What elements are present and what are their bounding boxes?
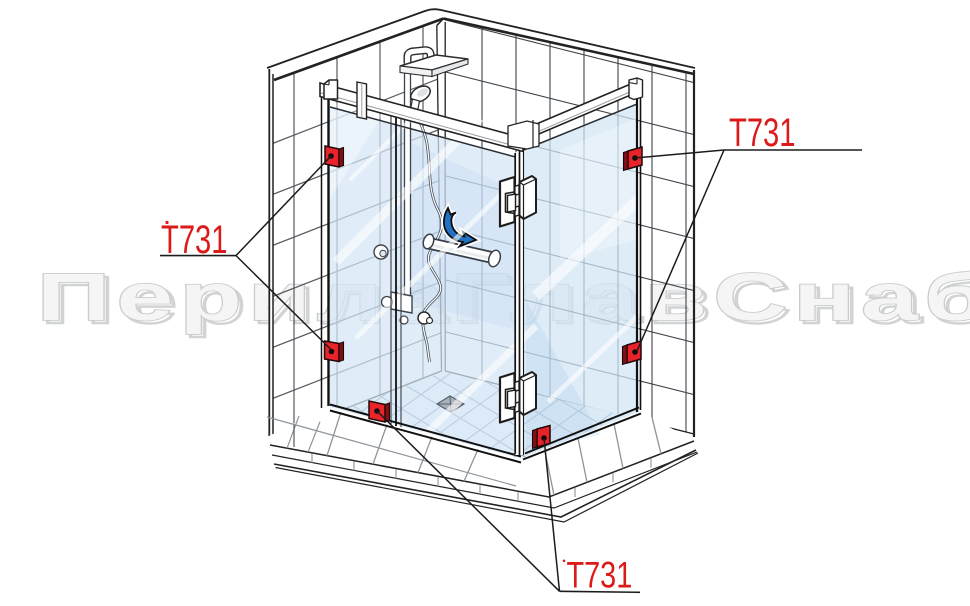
svg-text:Т731: Т731 xyxy=(729,111,796,156)
svg-text:Т731: Т731 xyxy=(567,555,633,596)
svg-text:Т731: Т731 xyxy=(161,218,228,263)
